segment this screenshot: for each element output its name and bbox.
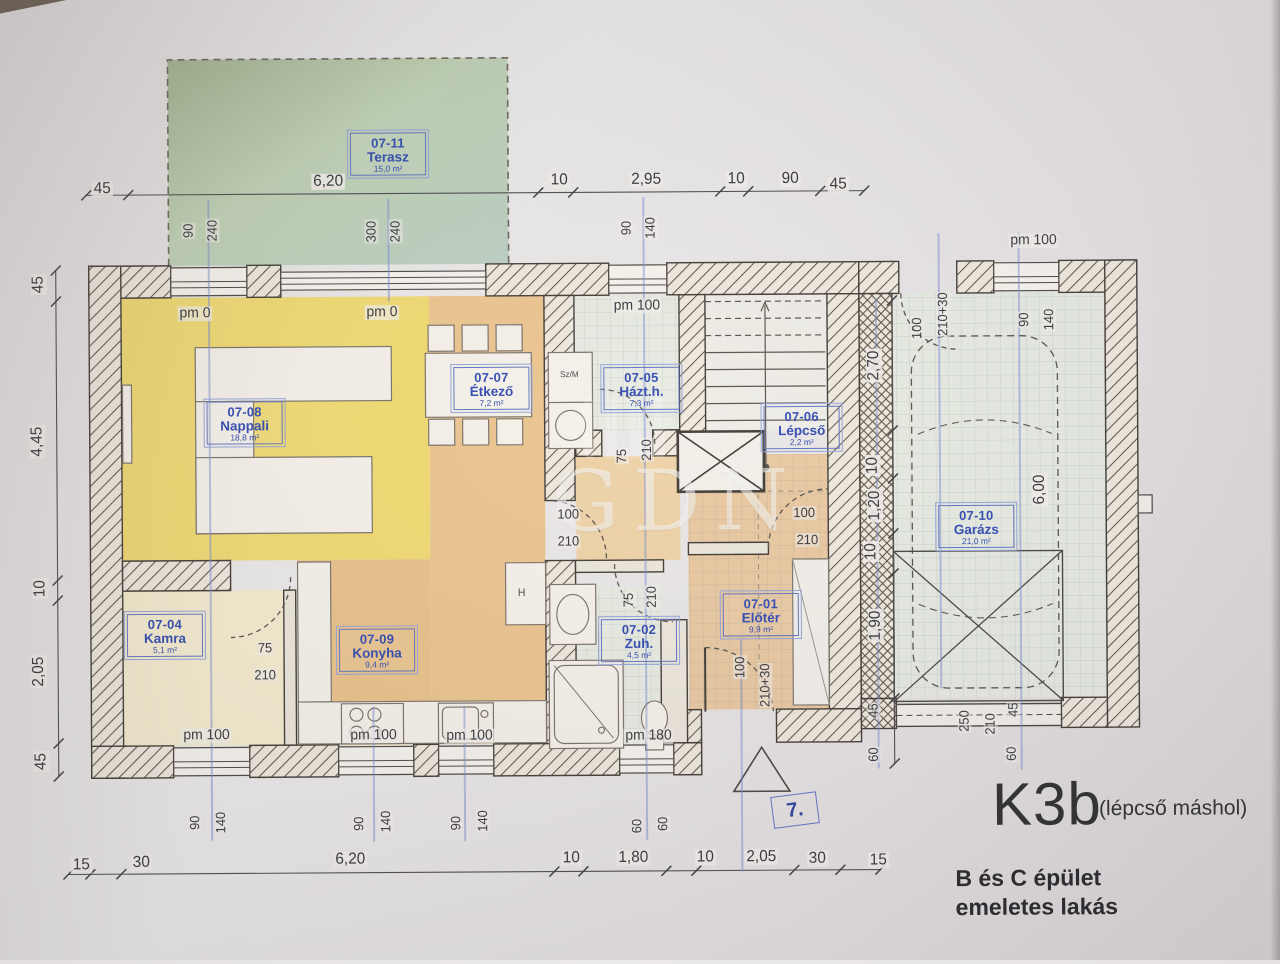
room-label-zuh: 07-02 Zuh. 4,5 m² (601, 619, 677, 662)
dim-dims-garage_door-0: 250 (958, 709, 972, 733)
dim-dims-door_hall-0: 100 (792, 506, 816, 520)
dim-dims-piers-3: 60 (1005, 746, 1019, 762)
photo-edge-shadow (1270, 0, 1280, 960)
dim-dims-door_etkezo-1: 210 (557, 534, 581, 548)
dim-dims-win_top-5: 140 (644, 216, 658, 240)
watermark-text: GDN (552, 451, 803, 551)
room-area: 7,3 m² (606, 398, 676, 408)
dim-dims-pm-3: pm 100 (1008, 233, 1058, 248)
dim-dims-door_entry-1: 210+30 (758, 662, 772, 708)
dim-dims-pm-5: pm 100 (348, 728, 398, 743)
dim-dims-win_bottom-6: 60 (630, 818, 644, 834)
dim-dims-bottom-7: 30 (807, 851, 828, 867)
building-line2: emeletes lakás (956, 892, 1119, 922)
dim-dims-garage_top-1: 210+30 (936, 291, 950, 337)
dim-dims-win_bottom-2: 90 (352, 816, 366, 832)
dim-dims-bottom-5: 10 (695, 849, 716, 865)
dim-dims-win_bottom-0: 90 (188, 815, 202, 831)
room-label-eloter: 07-01 Előtér 9,9 m² (723, 593, 799, 636)
dim-dims-pm-7: pm 180 (623, 728, 673, 743)
room-area: 9,9 m² (726, 624, 796, 634)
room-area: 9,4 m² (342, 659, 412, 669)
dim-dims-garage_depth-0: 6,00 (1032, 473, 1049, 507)
dim-dims-top-0: 45 (92, 181, 113, 197)
dim-dims-right-1: 10 (865, 455, 881, 476)
dim-dims-piers-1: 60 (867, 746, 881, 762)
dim-dims-win_top-2: 300 (365, 220, 379, 244)
dim-dims-top-3: 2,95 (629, 172, 663, 189)
room-name: Konyha (342, 645, 412, 660)
dim-dims-win_bottom-7: 60 (656, 816, 670, 832)
dim-dims-win_bottom-4: 90 (449, 815, 463, 831)
dim-dims-left-4: 45 (33, 751, 49, 772)
dim-dims-door_hazth-0: 75 (615, 448, 629, 464)
dim-dims-right-3: 10 (863, 541, 879, 562)
dim-dims-top-6: 45 (828, 177, 849, 193)
dim-dims-right-2: 1,20 (867, 489, 884, 523)
room-area: 5,1 m² (130, 645, 200, 655)
dim-dims-pm-2: pm 100 (612, 298, 662, 313)
building-line1: B és C épület (955, 863, 1118, 893)
dim-dims-door_hazth-1: 210 (640, 438, 654, 462)
dim-dims-left-2: 10 (32, 578, 48, 599)
dim-dims-right-4: 1,90 (868, 609, 885, 643)
room-label-hazth: 07-05 Házt.h. 7,3 m² (603, 367, 679, 410)
dim-dims-door_hall-1: 210 (796, 533, 820, 547)
room-label-kamra: 07-04 Kamra 5,1 m² (127, 614, 203, 657)
dim-dims-door_entry-0: 100 (733, 656, 747, 680)
plan-code-note: (lépcső máshol) (1099, 796, 1247, 821)
dim-dims-door_zuh-1: 210 (645, 585, 659, 609)
dim-dims-bottom-2: 6,20 (333, 852, 367, 869)
dim-dims-garage_top-0: 100 (910, 316, 924, 340)
dim-dims-garage_door-1: 210 (984, 712, 998, 736)
room-label-terasz: 07-11 Terasz 15,0 m² (350, 132, 426, 175)
dim-misc-szm: Sz/M (560, 370, 579, 379)
room-area: 7,2 m² (456, 398, 526, 408)
dim-dims-door_kamra-1: 210 (253, 668, 277, 682)
entry-number-badge: 7. (770, 791, 820, 829)
dim-dims-left-3: 2,05 (31, 655, 48, 689)
dim-dims-pm-1: pm 0 (365, 305, 400, 320)
floor-plan: GDN 07-11 Terasz 15,0 m² 07-08 Nappali 1… (0, 0, 1280, 964)
building-label: B és C épület emeletes lakás (955, 863, 1118, 922)
dim-dims-win_top-0: 90 (182, 223, 196, 239)
dim-dims-piers-0: 45 (866, 702, 880, 718)
dim-dims-win_bottom-1: 140 (214, 811, 228, 835)
dim-dims-bottom-0: 15 (71, 857, 92, 873)
dim-dims-pm-6: pm 100 (444, 729, 494, 744)
dim-dims-win_top-3: 240 (389, 220, 403, 244)
dim-dims-bottom-1: 30 (131, 855, 152, 871)
dim-dims-pm-4: pm 100 (181, 728, 231, 743)
room-area: 18,8 m² (210, 432, 280, 442)
dim-misc-fridge: H (518, 588, 526, 599)
dim-dims-top-5: 90 (780, 171, 801, 187)
dim-dims-left-1: 4,45 (29, 425, 46, 459)
room-area: 2,2 m² (767, 437, 837, 447)
dim-dims-pm-0: pm 0 (178, 306, 213, 321)
dim-dims-bottom-6: 2,05 (744, 849, 778, 866)
dim-dims-door_kamra-0: 75 (257, 641, 273, 655)
room-label-nappali: 07-08 Nappali 18,8 m² (207, 401, 283, 444)
dim-dims-door_zuh-0: 75 (622, 592, 636, 608)
room-label-konyha: 07-09 Konyha 9,4 m² (339, 628, 415, 671)
dim-dims-win_top-4: 90 (620, 220, 634, 236)
dim-dims-door_etkezo-0: 100 (556, 507, 580, 521)
dim-dims-right-0: 2,70 (866, 349, 883, 383)
room-label-garazs: 07-10 Garázs 21,0 m² (938, 505, 1014, 548)
dim-dims-bottom-3: 10 (561, 850, 582, 866)
dim-dims-bottom-8: 15 (868, 852, 889, 868)
photo-corner-shadow (0, 0, 78, 16)
room-area: 4,5 m² (604, 650, 674, 660)
dim-dims-garage_top-3: 140 (1042, 308, 1056, 332)
dim-dims-top-2: 10 (549, 172, 570, 188)
room-label-etkezo: 07-07 Étkező 7,2 m² (453, 367, 529, 410)
dim-dims-top-1: 6,20 (311, 174, 345, 191)
plan-code: K3b (992, 769, 1102, 839)
dim-dims-win_top-1: 240 (206, 219, 220, 243)
dim-dims-win_bottom-3: 140 (379, 810, 393, 834)
dim-dims-win_bottom-5: 140 (476, 809, 490, 833)
dim-dims-left-0: 45 (31, 274, 47, 295)
room-area: 15,0 m² (353, 163, 423, 173)
dim-dims-piers-2: 45 (1006, 702, 1020, 718)
dim-dims-top-4: 10 (726, 171, 747, 187)
room-label-lepcso: 07-06 Lépcső 2,2 m² (764, 406, 840, 449)
room-area: 21,0 m² (941, 536, 1011, 546)
dim-dims-bottom-4: 1,80 (616, 850, 650, 867)
dim-dims-garage_top-2: 90 (1017, 311, 1031, 327)
